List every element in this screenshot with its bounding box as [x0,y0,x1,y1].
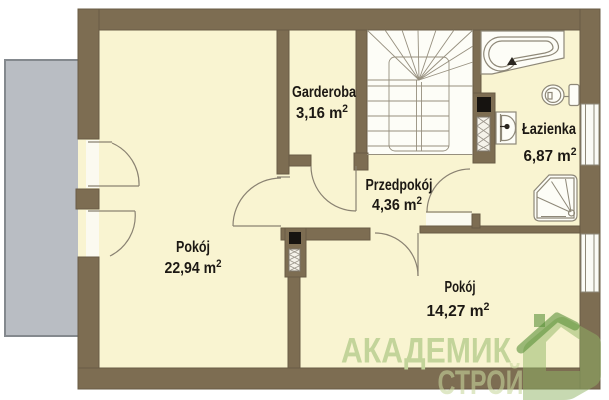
svg-text:Przedpokój: Przedpokój [366,177,433,194]
svg-text:Łazienka: Łazienka [522,121,576,138]
svg-text:Pokój: Pokój [176,239,210,256]
svg-text:22,94 m2: 22,94 m2 [165,258,222,277]
svg-text:Pokój: Pokój [445,279,476,296]
svg-text:СТРОЙ: СТРОЙ [438,363,524,400]
svg-text:4,36 m2: 4,36 m2 [372,195,422,214]
svg-text:3,16 m2: 3,16 m2 [296,103,348,122]
svg-text:6,87 m2: 6,87 m2 [524,146,577,165]
svg-text:14,27 m2: 14,27 m2 [427,301,490,320]
svg-text:Garderoba: Garderoba [292,84,356,101]
